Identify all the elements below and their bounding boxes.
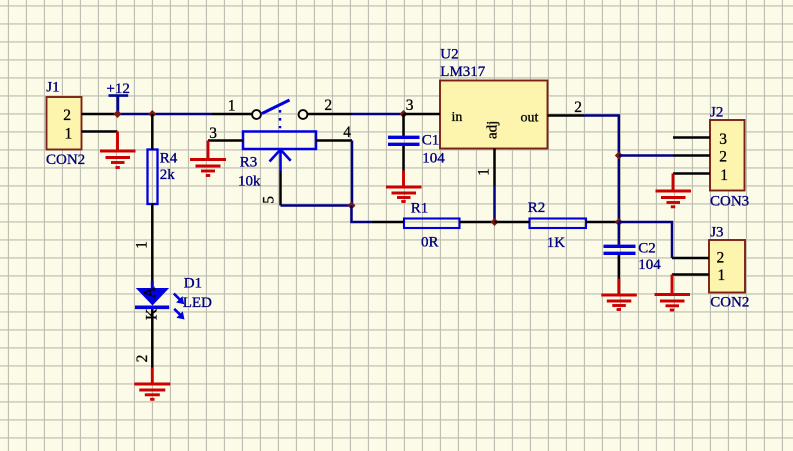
svg-text:U2: U2 bbox=[440, 47, 458, 63]
svg-text:2: 2 bbox=[717, 250, 725, 267]
svg-text:out: out bbox=[521, 111, 539, 126]
svg-text:3: 3 bbox=[209, 125, 217, 142]
svg-text:4: 4 bbox=[343, 124, 351, 141]
svg-text:1: 1 bbox=[65, 126, 73, 143]
svg-text:R3: R3 bbox=[240, 155, 258, 171]
svg-text:J1: J1 bbox=[46, 80, 59, 96]
svg-text:104: 104 bbox=[422, 151, 445, 167]
svg-text:1: 1 bbox=[476, 168, 493, 176]
svg-text:2: 2 bbox=[574, 99, 582, 116]
svg-text:CON3: CON3 bbox=[710, 193, 749, 209]
svg-text:CON2: CON2 bbox=[710, 295, 749, 311]
svg-text:2: 2 bbox=[134, 355, 151, 363]
svg-text:LED: LED bbox=[183, 295, 212, 311]
svg-text:A: A bbox=[142, 286, 159, 298]
svg-text:LM317: LM317 bbox=[440, 64, 486, 80]
svg-text:104: 104 bbox=[638, 257, 661, 273]
svg-text:2: 2 bbox=[63, 107, 71, 124]
svg-text:R2: R2 bbox=[528, 200, 546, 216]
svg-text:J2: J2 bbox=[710, 105, 723, 121]
svg-text:R4: R4 bbox=[160, 151, 178, 167]
svg-text:D1: D1 bbox=[184, 276, 202, 292]
svg-text:1K: 1K bbox=[547, 235, 566, 251]
svg-text:adj: adj bbox=[485, 121, 501, 139]
svg-text:+12: +12 bbox=[106, 81, 129, 97]
svg-text:1: 1 bbox=[134, 241, 151, 249]
svg-text:2: 2 bbox=[719, 149, 727, 166]
svg-text:J3: J3 bbox=[710, 224, 723, 240]
svg-text:2k: 2k bbox=[160, 167, 176, 183]
svg-text:in: in bbox=[452, 110, 463, 125]
svg-text:5: 5 bbox=[260, 196, 277, 204]
svg-text:R1: R1 bbox=[411, 201, 429, 217]
svg-text:C1: C1 bbox=[422, 133, 440, 149]
svg-text:1: 1 bbox=[718, 267, 726, 284]
svg-text:0R: 0R bbox=[421, 234, 439, 250]
svg-text:10k: 10k bbox=[238, 174, 261, 190]
svg-text:C2: C2 bbox=[638, 241, 656, 257]
svg-text:2: 2 bbox=[324, 97, 332, 114]
svg-text:3: 3 bbox=[719, 131, 727, 148]
svg-text:1: 1 bbox=[720, 167, 728, 184]
svg-text:CON2: CON2 bbox=[46, 152, 85, 168]
svg-text:3: 3 bbox=[406, 97, 414, 114]
svg-text:1: 1 bbox=[228, 98, 236, 115]
